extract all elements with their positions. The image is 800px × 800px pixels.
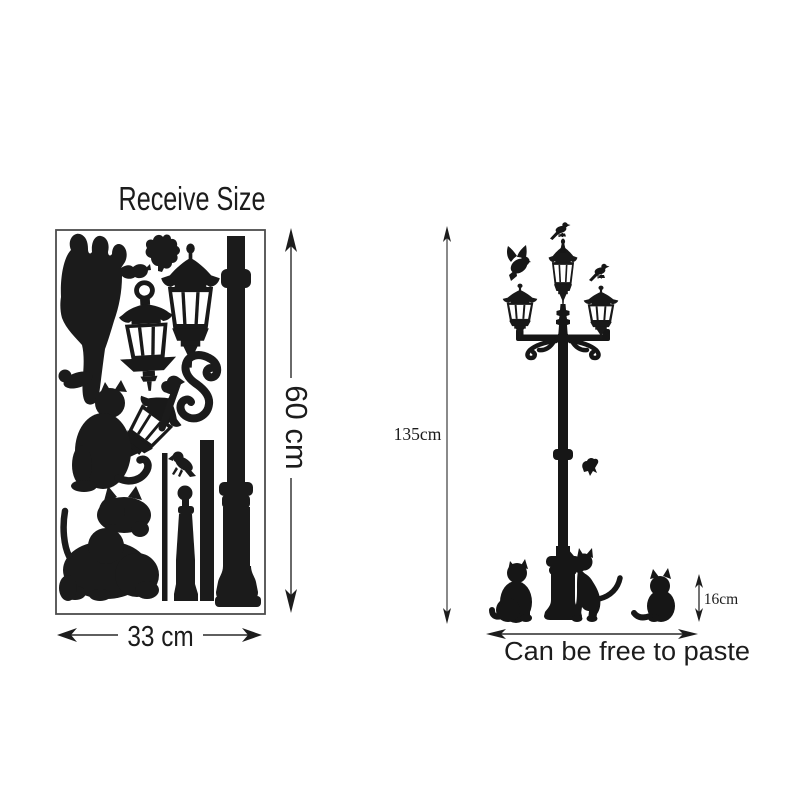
svg-text:Can be free to paste: Can be free to paste bbox=[504, 638, 750, 666]
svg-text:135cm: 135cm bbox=[394, 424, 442, 444]
svg-text:16cm: 16cm bbox=[704, 591, 738, 608]
svg-text:Receive Size: Receive Size bbox=[119, 180, 266, 217]
svg-text:33 cm: 33 cm bbox=[127, 620, 193, 652]
svg-text:60 cm: 60 cm bbox=[279, 385, 314, 469]
